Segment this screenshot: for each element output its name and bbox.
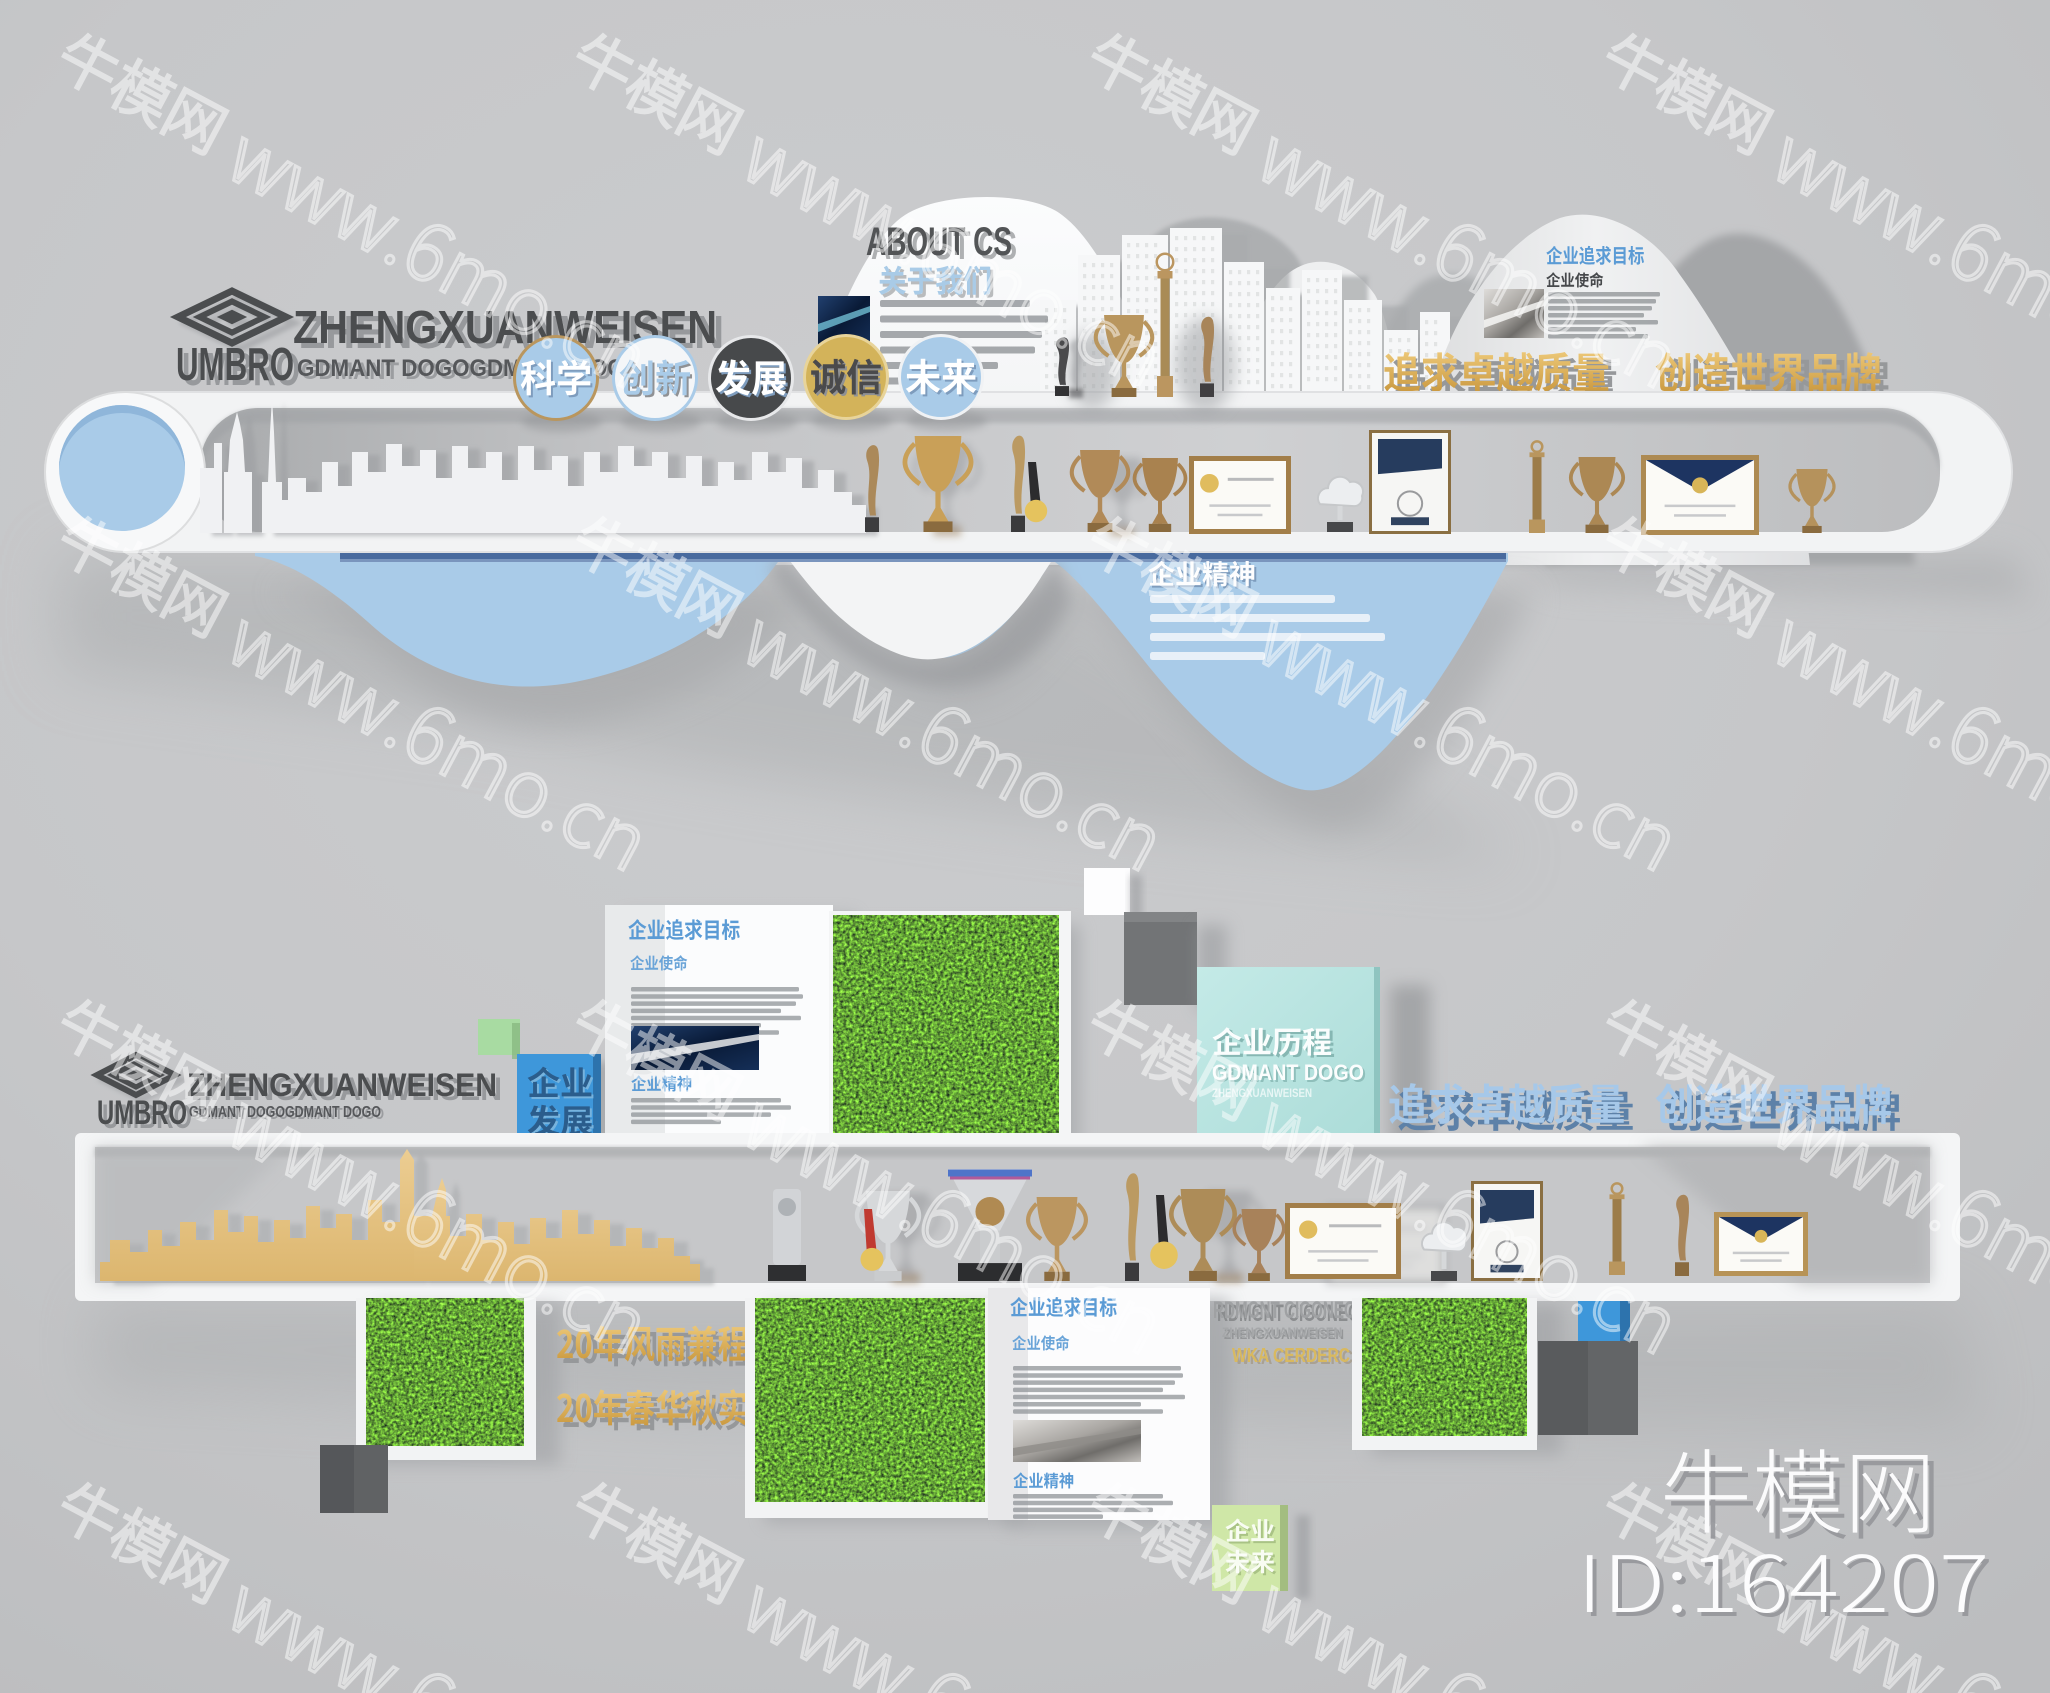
svg-text:RDMGNT CIGONEC: RDMGNT CIGONEC [1213,1297,1355,1324]
svg-text:UMBRO: UMBRO [97,1094,187,1132]
svg-text:UMBRO: UMBRO [176,338,294,390]
svg-text:WKA CERDERC: WKA CERDERC [1232,1345,1350,1367]
svg-text:ZHENGXUANWEISEN: ZHENGXUANWEISEN [1222,1324,1342,1340]
svg-text:ZHENGXUANWEISEN: ZHENGXUANWEISEN [187,1067,497,1103]
svg-text:GDMANT DOGOGDMANT DOGO: GDMANT DOGOGDMANT DOGO [189,1104,381,1121]
